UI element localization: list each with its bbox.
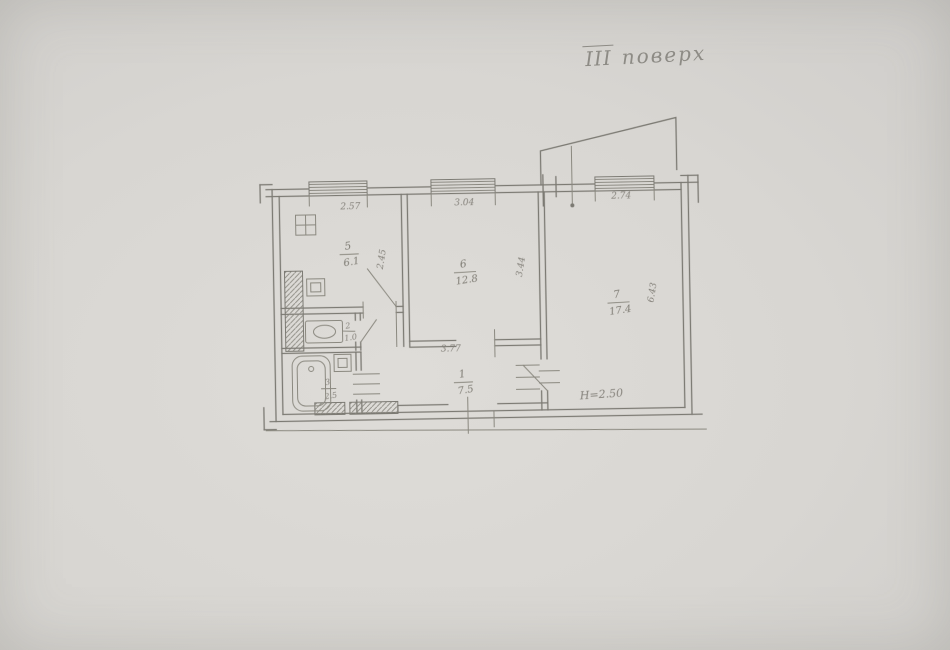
kitchen-number: 5 [344, 240, 353, 253]
vent-shaft [284, 271, 303, 351]
entry-closet-block-2 [350, 401, 398, 414]
washbasin-icon [334, 354, 351, 371]
scanned-floor-plan-page: ІІІповерх [0, 0, 950, 650]
room-label-kitchen: 5 6.1 [338, 239, 360, 269]
dim-kitchen-width: 2.57 [339, 202, 360, 212]
floor-plan-drawing: 5 6.1 6 12.8 7 17.4 1 7.5 3 [0, 0, 950, 650]
room-label-bedroom: 7 17.4 [606, 287, 632, 318]
hallway-number: 1 [458, 368, 466, 381]
kitchen-area: 6.1 [343, 256, 360, 269]
kitchen-window [309, 181, 367, 196]
living-room-number: 6 [459, 258, 468, 271]
bedroom-area: 17.4 [609, 304, 633, 318]
room-label-bathroom: 3 2.5 [320, 377, 338, 402]
interior-walls [279, 192, 560, 437]
dim-living-width: 3.04 [454, 198, 474, 208]
room-label-living-room: 6 12.8 [452, 257, 478, 288]
bedroom-number: 7 [613, 288, 622, 301]
toilet-icon [305, 320, 342, 343]
dim-bedroom-width: 2.74 [610, 191, 631, 201]
room-label-wc: 2 1.0 [342, 320, 358, 343]
wc-number: 2 [344, 321, 351, 331]
balcony-door-mark [570, 203, 574, 207]
dim-kitchen-depth: 2.45 [376, 248, 389, 271]
kitchen-sink-icon [307, 279, 325, 296]
hallway-area: 7.5 [457, 384, 474, 397]
living-room-area: 12.8 [455, 273, 479, 287]
bathroom-area: 2.5 [323, 390, 338, 401]
dim-hallway-width: 3.77 [441, 344, 461, 354]
ceiling-height-note: Н=2.50 [578, 386, 623, 402]
balcony-outline [540, 118, 678, 208]
bedroom-window [595, 176, 654, 191]
living-room-window [431, 179, 495, 194]
dim-living-depth: 3.44 [515, 256, 528, 278]
dim-bedroom-depth: 6.43 [646, 282, 659, 304]
stove-icon [295, 215, 315, 235]
wc-area: 1.0 [344, 332, 358, 343]
room-label-hallway: 1 7.5 [452, 367, 474, 397]
